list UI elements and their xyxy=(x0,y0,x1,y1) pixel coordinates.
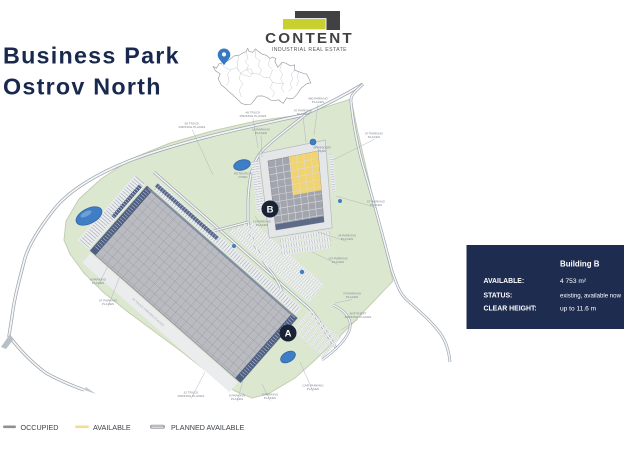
svg-text:AVAILABLE:: AVAILABLE: xyxy=(484,278,525,285)
svg-text:PARKING PLACES: PARKING PLACES xyxy=(240,114,267,118)
svg-text:OCCUPIED: OCCUPIED xyxy=(21,423,59,432)
svg-text:PLACES: PLACES xyxy=(346,295,358,299)
svg-text:PLACES: PLACES xyxy=(312,100,324,104)
svg-text:PARKING PLACES: PARKING PLACES xyxy=(178,394,205,398)
svg-text:PLACES: PLACES xyxy=(341,237,353,241)
svg-text:4 753 m²: 4 753 m² xyxy=(560,278,587,285)
svg-text:up to 11.6 m: up to 11.6 m xyxy=(560,306,597,313)
svg-text:TANK: TANK xyxy=(318,149,327,153)
svg-text:PLACES: PLACES xyxy=(264,396,276,400)
svg-text:PLACES: PLACES xyxy=(368,135,380,139)
svg-text:CLEAR HEIGHT:: CLEAR HEIGHT: xyxy=(484,306,537,313)
svg-text:Business Park: Business Park xyxy=(3,43,180,69)
svg-text:CONTENT: CONTENT xyxy=(265,30,354,47)
svg-text:existing, available now: existing, available now xyxy=(560,293,622,300)
svg-text:PLACES: PLACES xyxy=(102,302,114,306)
svg-text:PARKING PLACES: PARKING PLACES xyxy=(179,125,206,129)
svg-text:PLACES: PLACES xyxy=(231,397,243,401)
svg-text:PARKING PLACES: PARKING PLACES xyxy=(345,315,372,319)
svg-text:PLACES: PLACES xyxy=(297,112,309,116)
svg-text:PLACES: PLACES xyxy=(307,387,319,391)
svg-text:A: A xyxy=(285,329,292,340)
svg-text:PLACES: PLACES xyxy=(370,203,382,207)
svg-text:PLACES: PLACES xyxy=(92,281,104,285)
svg-text:STATUS:: STATUS: xyxy=(484,293,513,300)
svg-text:PLACES: PLACES xyxy=(255,131,267,135)
svg-text:AVAILABLE: AVAILABLE xyxy=(93,423,131,432)
svg-text:PLANNED AVAILABLE: PLANNED AVAILABLE xyxy=(171,423,244,432)
svg-text:B: B xyxy=(267,205,274,216)
svg-text:PLACES: PLACES xyxy=(332,260,344,264)
svg-text:POND: POND xyxy=(239,175,249,179)
svg-text:Ostrov North: Ostrov North xyxy=(3,73,162,99)
svg-text:PLACES: PLACES xyxy=(256,223,268,227)
svg-text:Building B: Building B xyxy=(560,260,600,269)
svg-text:INDUSTRIAL REAL ESTATE: INDUSTRIAL REAL ESTATE xyxy=(272,47,347,53)
